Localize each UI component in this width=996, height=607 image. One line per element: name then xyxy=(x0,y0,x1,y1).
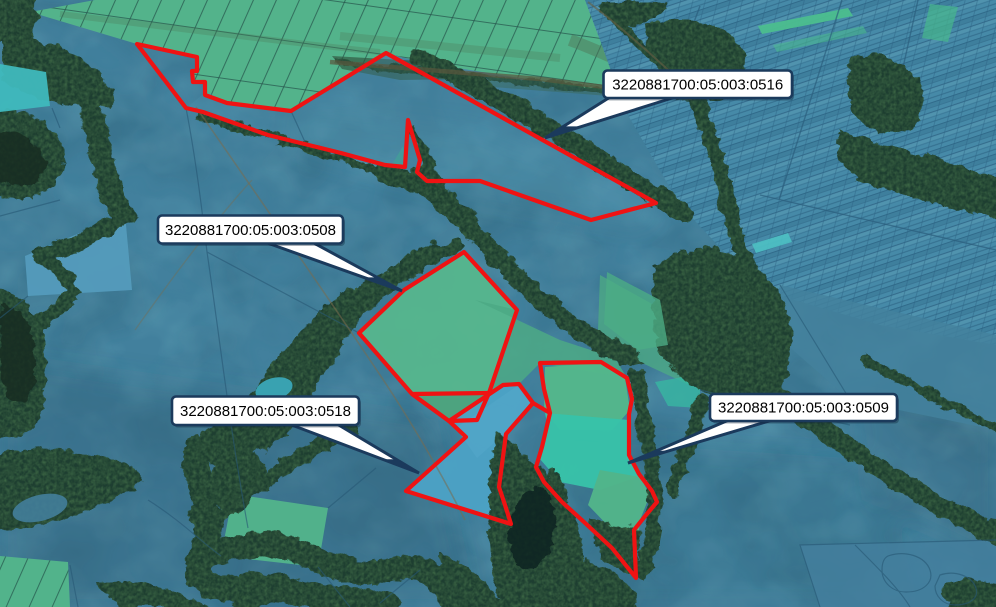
svg-text:3220881700:05:003:0518: 3220881700:05:003:0518 xyxy=(180,403,351,420)
svg-text:3220881700:05:003:0508: 3220881700:05:003:0508 xyxy=(165,222,336,239)
svg-text:3220881700:05:003:0516: 3220881700:05:003:0516 xyxy=(612,77,783,94)
svg-text:3220881700:05:003:0509: 3220881700:05:003:0509 xyxy=(718,400,889,417)
